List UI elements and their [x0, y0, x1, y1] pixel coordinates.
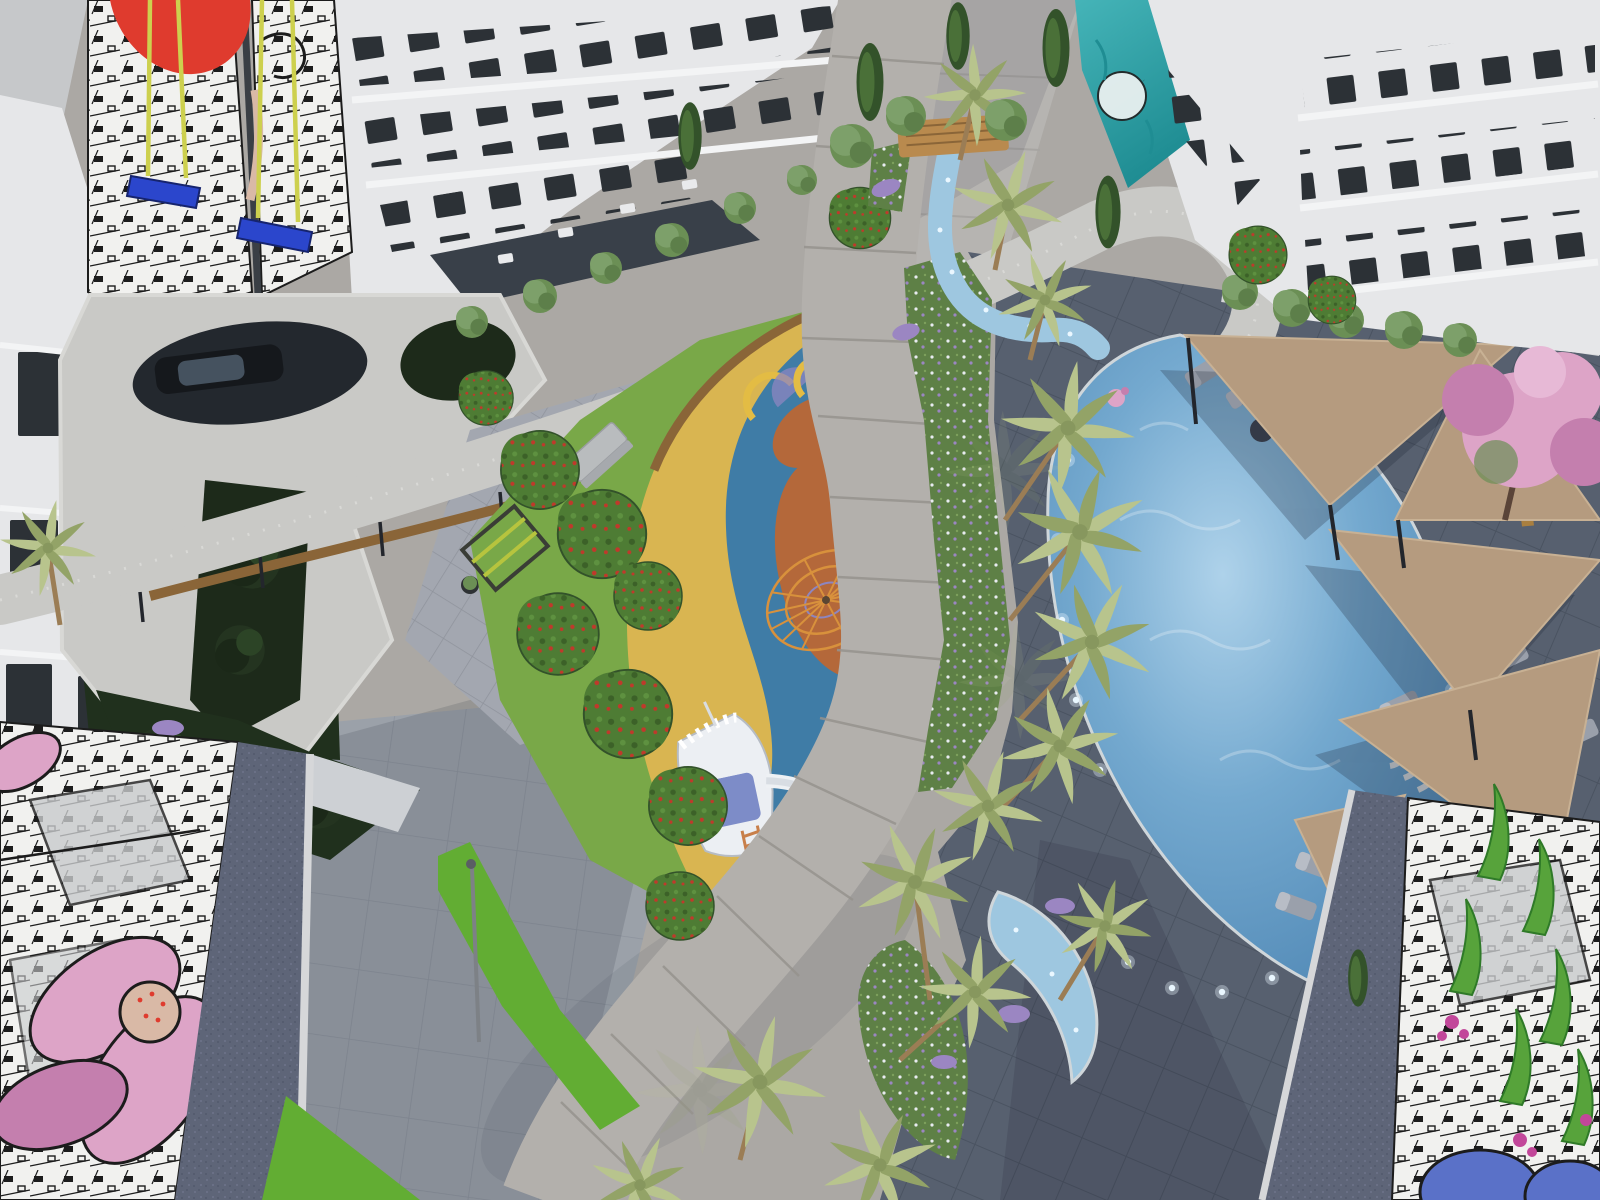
cypress-tree: [678, 102, 701, 170]
olive-tree: [886, 96, 926, 136]
berry-tree: [501, 431, 579, 509]
olive-tree: [830, 124, 874, 168]
cypress-tree: [1043, 9, 1070, 87]
lavender-patch: [152, 720, 184, 736]
berry-tree: [646, 872, 714, 940]
lamp-head: [466, 859, 476, 869]
berry-tree: [517, 593, 599, 675]
berry-tree: [584, 670, 672, 758]
berry-tree: [614, 562, 682, 630]
small-cypress: [1348, 949, 1368, 1006]
olive-tree: [985, 99, 1027, 141]
aerial-render: [0, 0, 1600, 1200]
berry-tree: [649, 767, 727, 845]
berry-tree: [1308, 276, 1356, 324]
cypress-tree: [946, 2, 969, 70]
berry-tree: [459, 371, 513, 425]
berry-tree: [1229, 226, 1287, 284]
cypress-tree: [1095, 176, 1120, 249]
cypress-tree: [857, 43, 884, 121]
